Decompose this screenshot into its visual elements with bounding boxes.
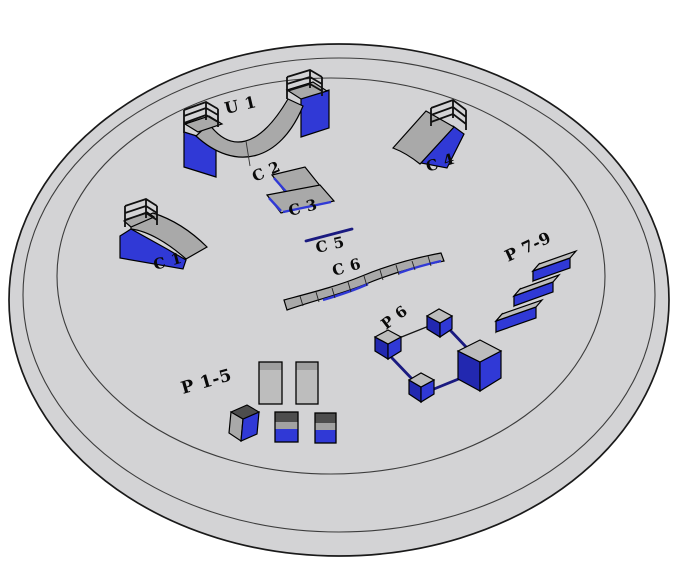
skatepark-scene: U 1 C 4 C 1 C 2 C 3 C 5 C 6 [0, 0, 680, 579]
p1-5-tall-panel-1 [259, 362, 282, 404]
p1-5-tall-panel-2 [296, 362, 318, 404]
p1-5-banded-block-1 [275, 412, 298, 442]
pad-outer-ellipse [9, 44, 669, 556]
p1-5-cube [229, 405, 259, 441]
p1-5-banded-block-2 [315, 413, 336, 443]
scene-canvas: U 1 C 4 C 1 C 2 C 3 C 5 C 6 [0, 0, 680, 579]
ground [9, 44, 669, 556]
